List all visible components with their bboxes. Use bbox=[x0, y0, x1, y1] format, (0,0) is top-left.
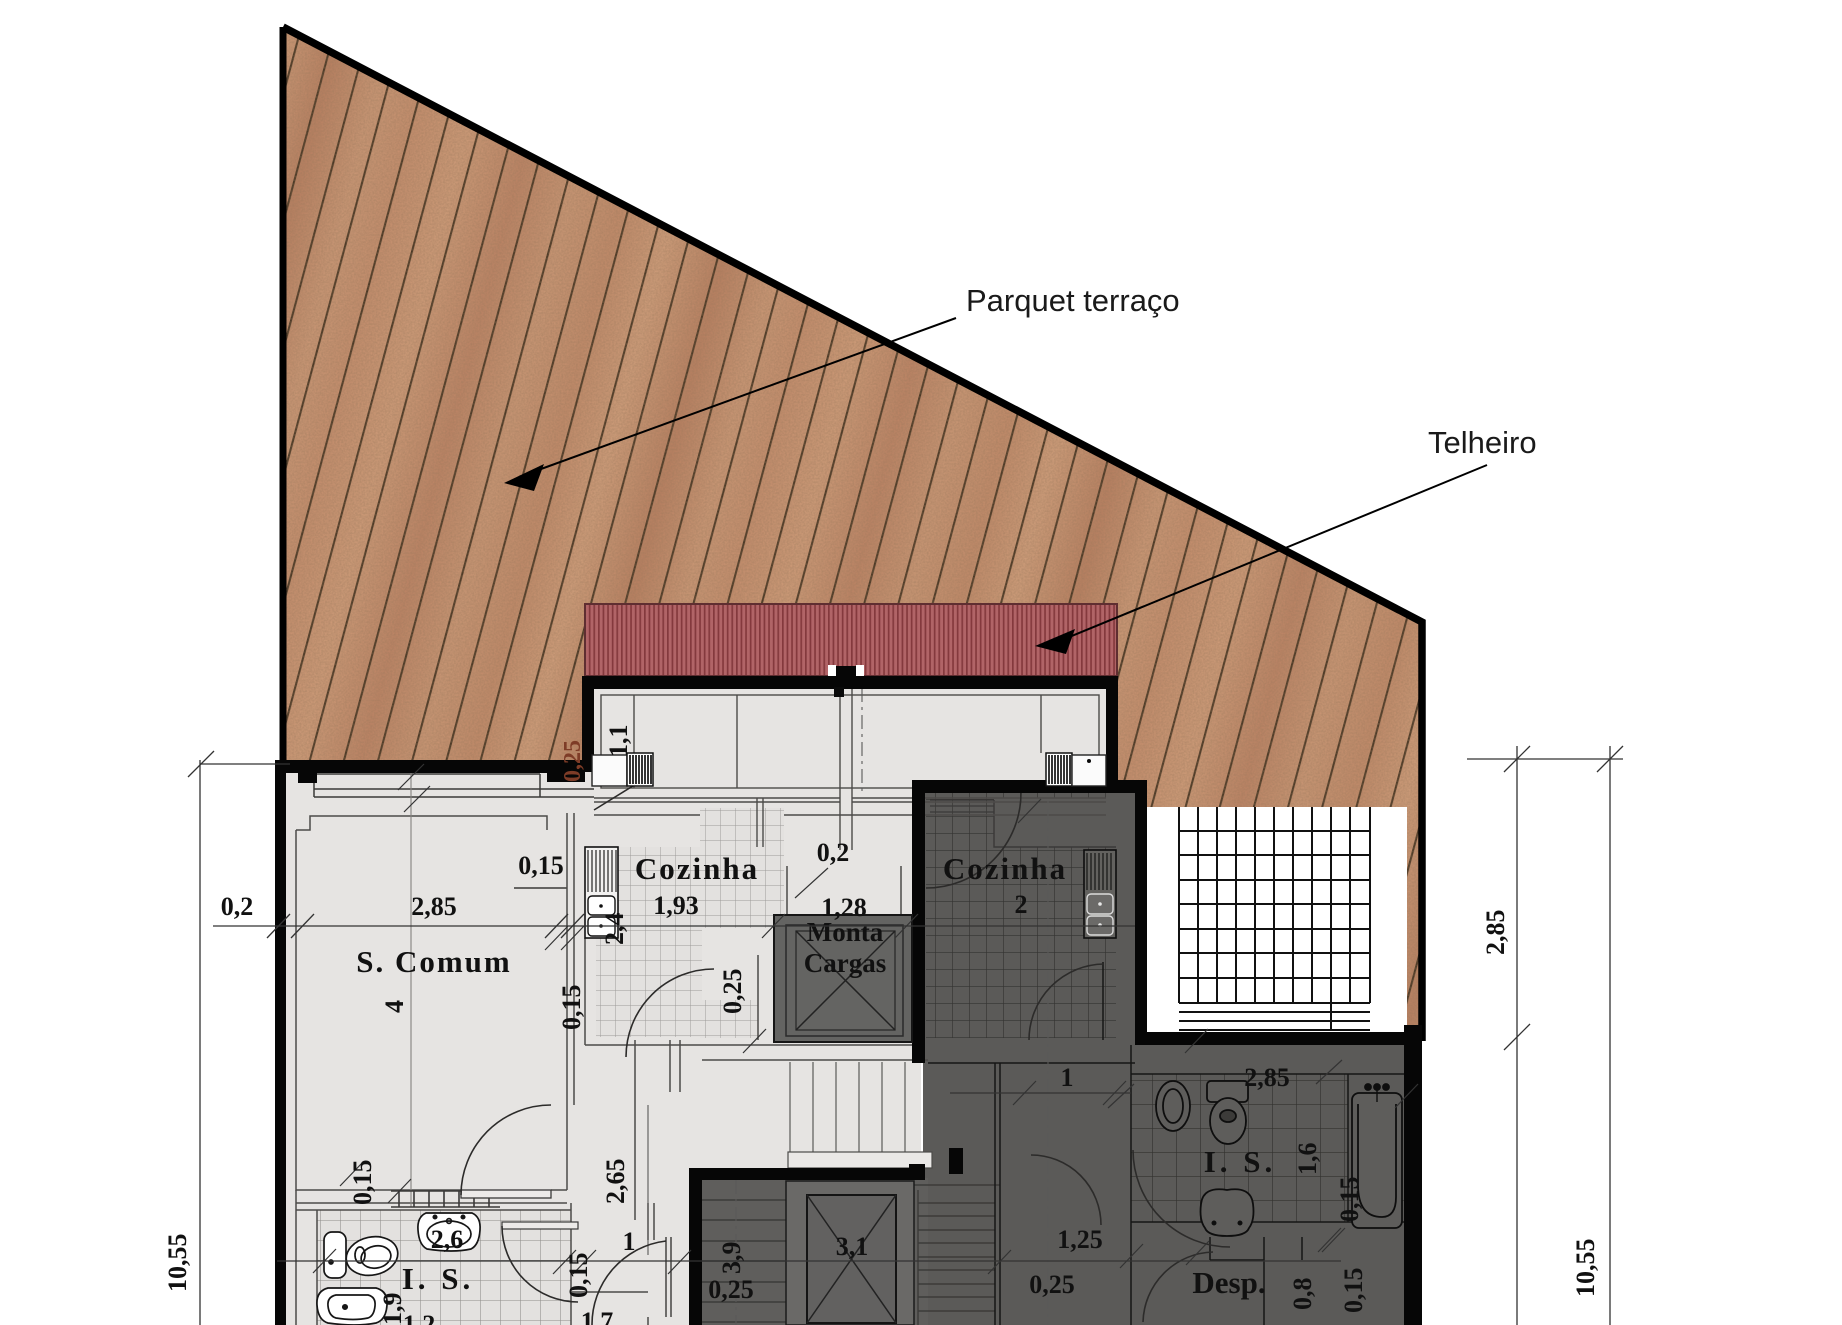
svg-text:3,1: 3,1 bbox=[836, 1232, 869, 1261]
svg-text:0,2: 0,2 bbox=[221, 892, 254, 921]
svg-text:2,85: 2,85 bbox=[1244, 1063, 1290, 1092]
svg-text:2: 2 bbox=[1015, 890, 1028, 919]
svg-text:I. S.: I. S. bbox=[1204, 1144, 1277, 1179]
svg-text:0,25: 0,25 bbox=[1029, 1270, 1075, 1299]
svg-text:1,6: 1,6 bbox=[1293, 1143, 1322, 1176]
svg-text:Cargas: Cargas bbox=[804, 948, 887, 978]
svg-text:1,7: 1,7 bbox=[581, 1307, 614, 1325]
svg-text:10,55: 10,55 bbox=[1571, 1239, 1600, 1298]
svg-text:Cozinha: Cozinha bbox=[943, 851, 1067, 886]
svg-text:2,6: 2,6 bbox=[431, 1225, 464, 1254]
svg-text:0,15: 0,15 bbox=[564, 1253, 593, 1299]
svg-text:0,15: 0,15 bbox=[1339, 1268, 1368, 1314]
svg-text:1,25: 1,25 bbox=[1057, 1225, 1103, 1254]
svg-text:0,15: 0,15 bbox=[1335, 1177, 1364, 1223]
svg-text:0,25: 0,25 bbox=[560, 740, 586, 782]
svg-text:Telheiro: Telheiro bbox=[1428, 425, 1537, 460]
svg-text:10,55: 10,55 bbox=[163, 1234, 192, 1293]
svg-text:1: 1 bbox=[1061, 1063, 1074, 1092]
svg-text:3,9: 3,9 bbox=[717, 1242, 746, 1275]
svg-text:0,25: 0,25 bbox=[718, 969, 747, 1015]
svg-text:2,85: 2,85 bbox=[411, 892, 457, 921]
svg-text:2,85: 2,85 bbox=[1481, 910, 1510, 956]
svg-text:S. Comum: S. Comum bbox=[356, 944, 512, 979]
svg-text:0,8: 0,8 bbox=[1288, 1278, 1317, 1311]
svg-text:0,25: 0,25 bbox=[708, 1275, 754, 1304]
svg-text:2,65: 2,65 bbox=[601, 1159, 630, 1205]
svg-text:1: 1 bbox=[623, 1227, 636, 1256]
svg-text:I. S.: I. S. bbox=[402, 1261, 475, 1296]
svg-text:Parquet terraço: Parquet terraço bbox=[966, 283, 1180, 318]
svg-text:0,15: 0,15 bbox=[557, 985, 586, 1031]
svg-text:Desp.: Desp. bbox=[1192, 1265, 1265, 1300]
svg-text:1,1: 1,1 bbox=[604, 725, 633, 758]
svg-text:0,2: 0,2 bbox=[817, 838, 850, 867]
svg-text:1,93: 1,93 bbox=[653, 891, 699, 920]
svg-text:Monta: Monta bbox=[807, 917, 884, 947]
svg-text:4: 4 bbox=[380, 1000, 409, 1013]
svg-text:Cozinha: Cozinha bbox=[635, 851, 759, 886]
svg-text:0,15: 0,15 bbox=[518, 851, 564, 880]
svg-text:1,2: 1,2 bbox=[403, 1310, 436, 1325]
svg-text:2,4: 2,4 bbox=[600, 913, 629, 946]
svg-text:0,15: 0,15 bbox=[348, 1160, 377, 1206]
